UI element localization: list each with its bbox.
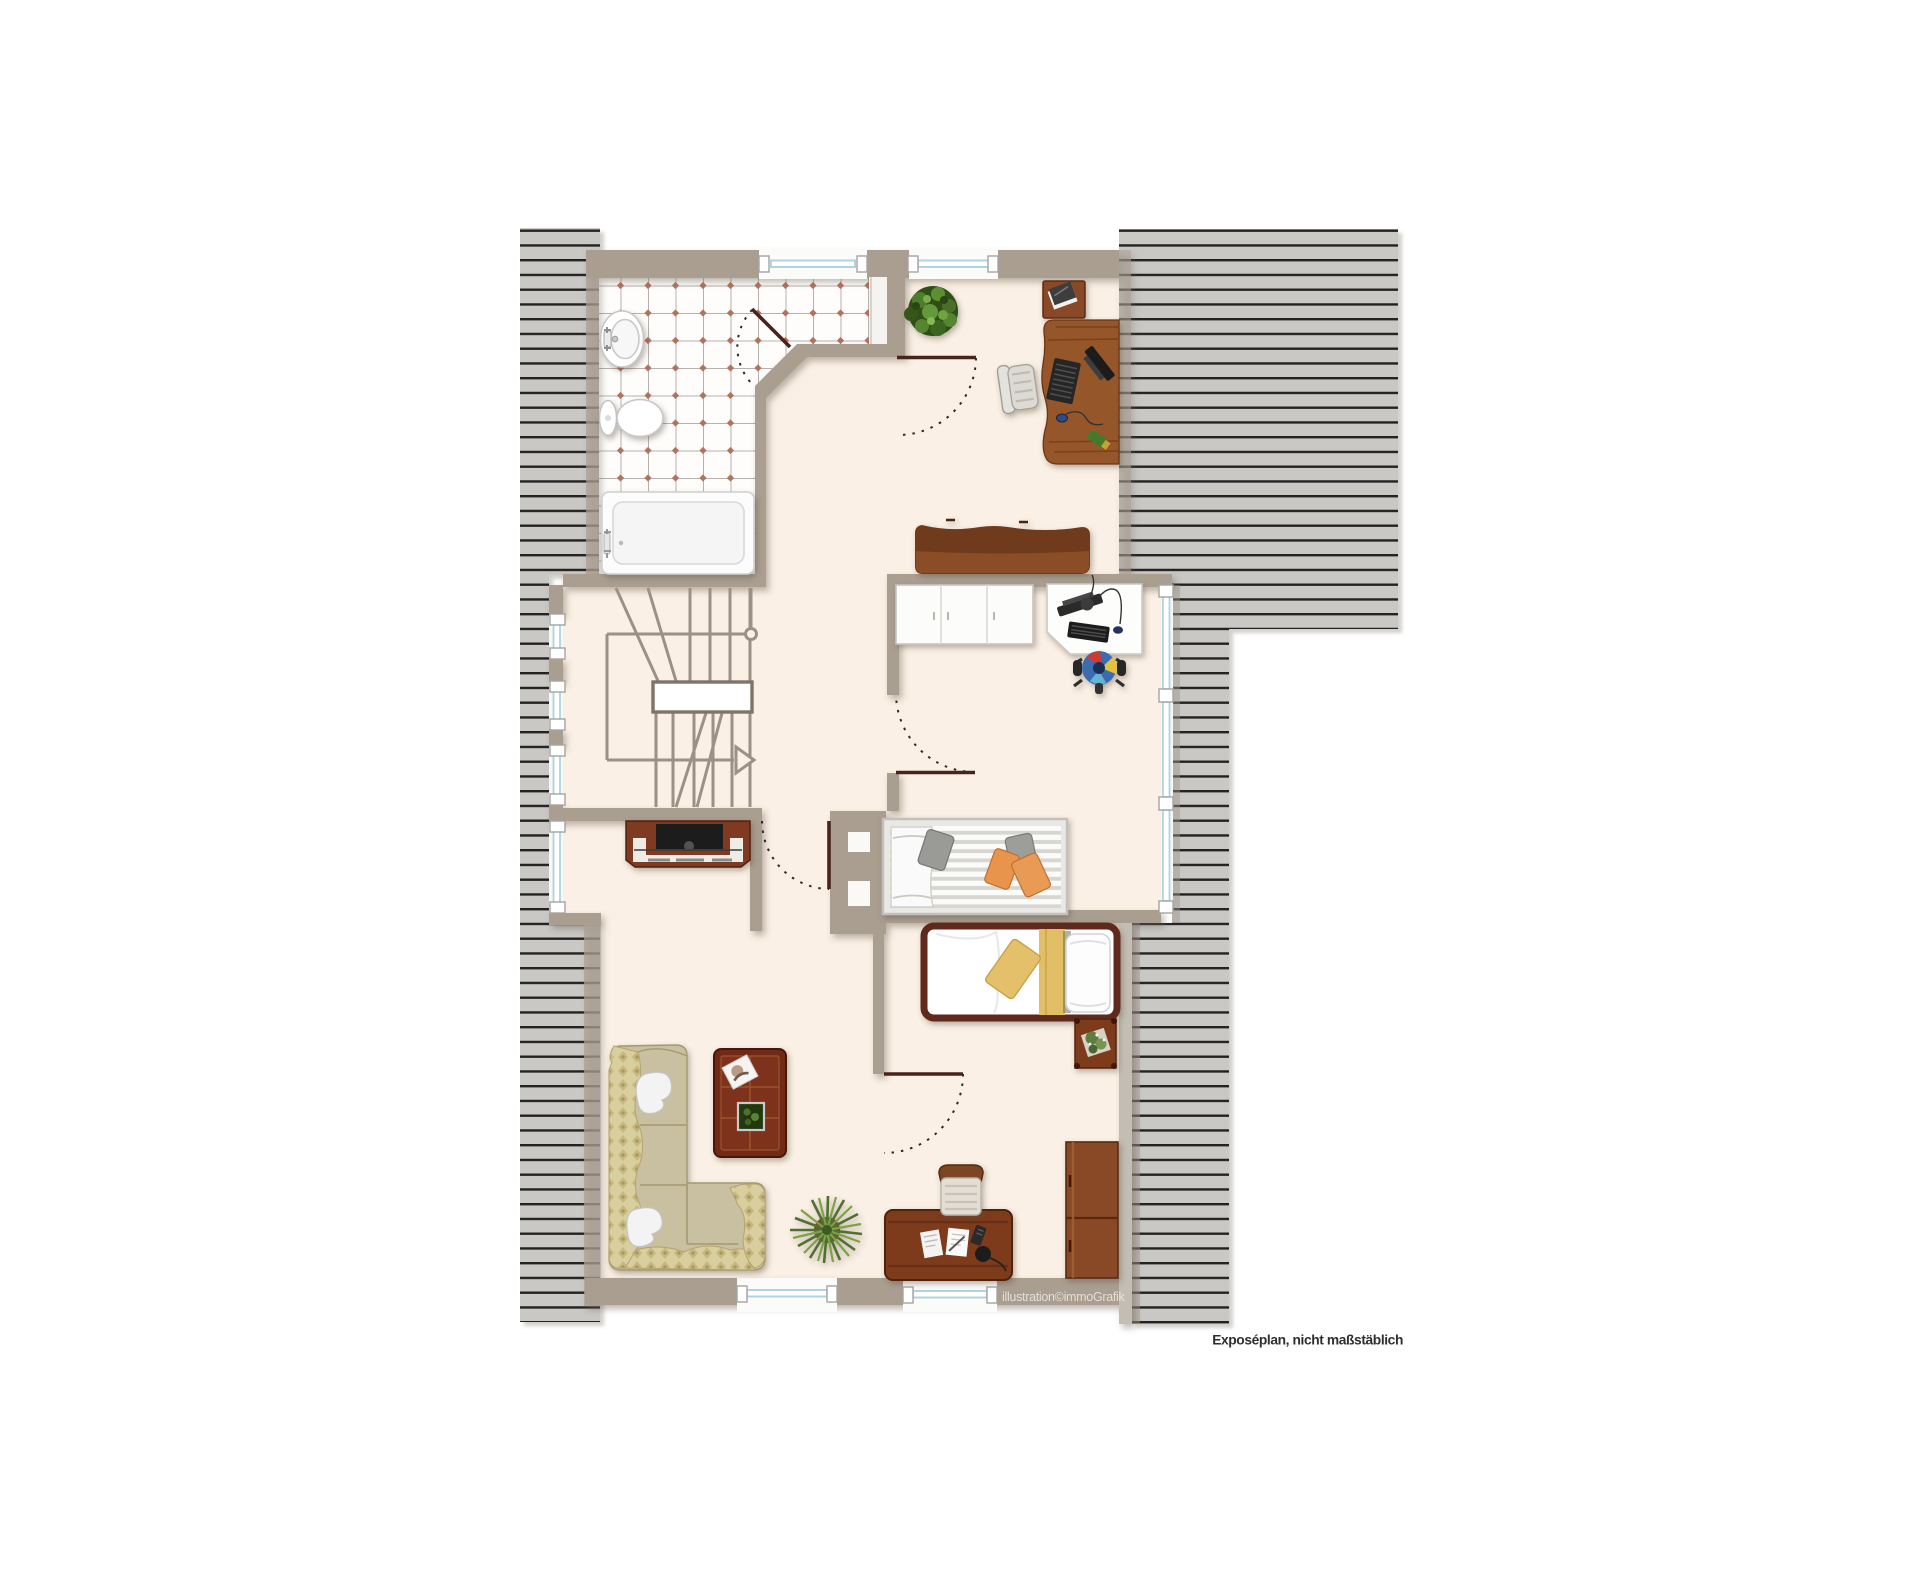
svg-text:illustration©immoGrafik: illustration©immoGrafik xyxy=(1002,1290,1126,1304)
svg-text:Exposéplan, nicht maßstäblich: Exposéplan, nicht maßstäblich xyxy=(1212,1333,1403,1348)
